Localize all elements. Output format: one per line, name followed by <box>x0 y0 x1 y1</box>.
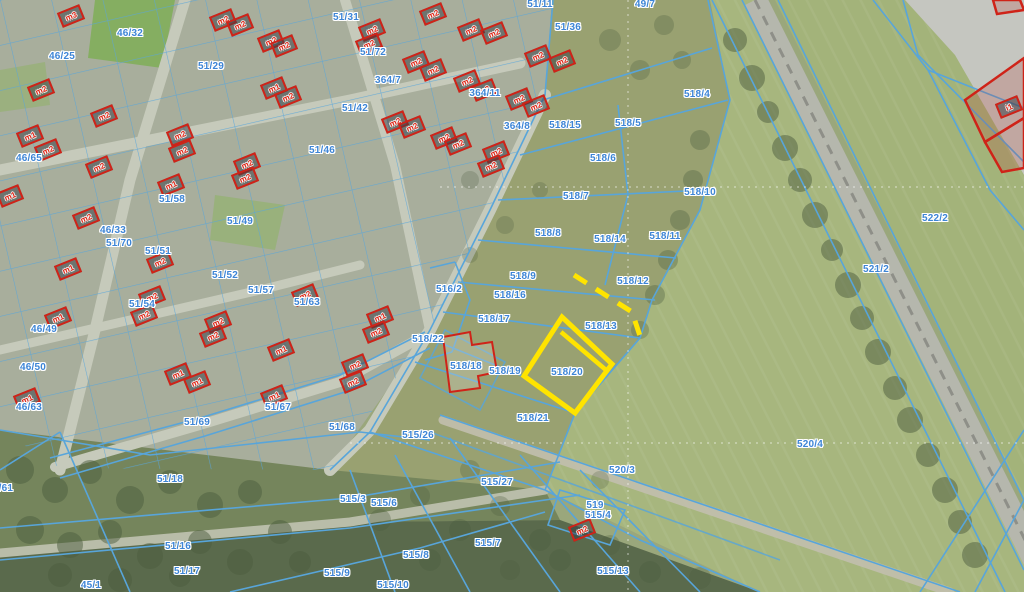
terrain-layer <box>0 0 1024 592</box>
map-canvas[interactable]: m3m2m2m2m2m1m2m2m2m1m2m2m2m2m2m2m1m2m2m2… <box>0 0 1024 592</box>
